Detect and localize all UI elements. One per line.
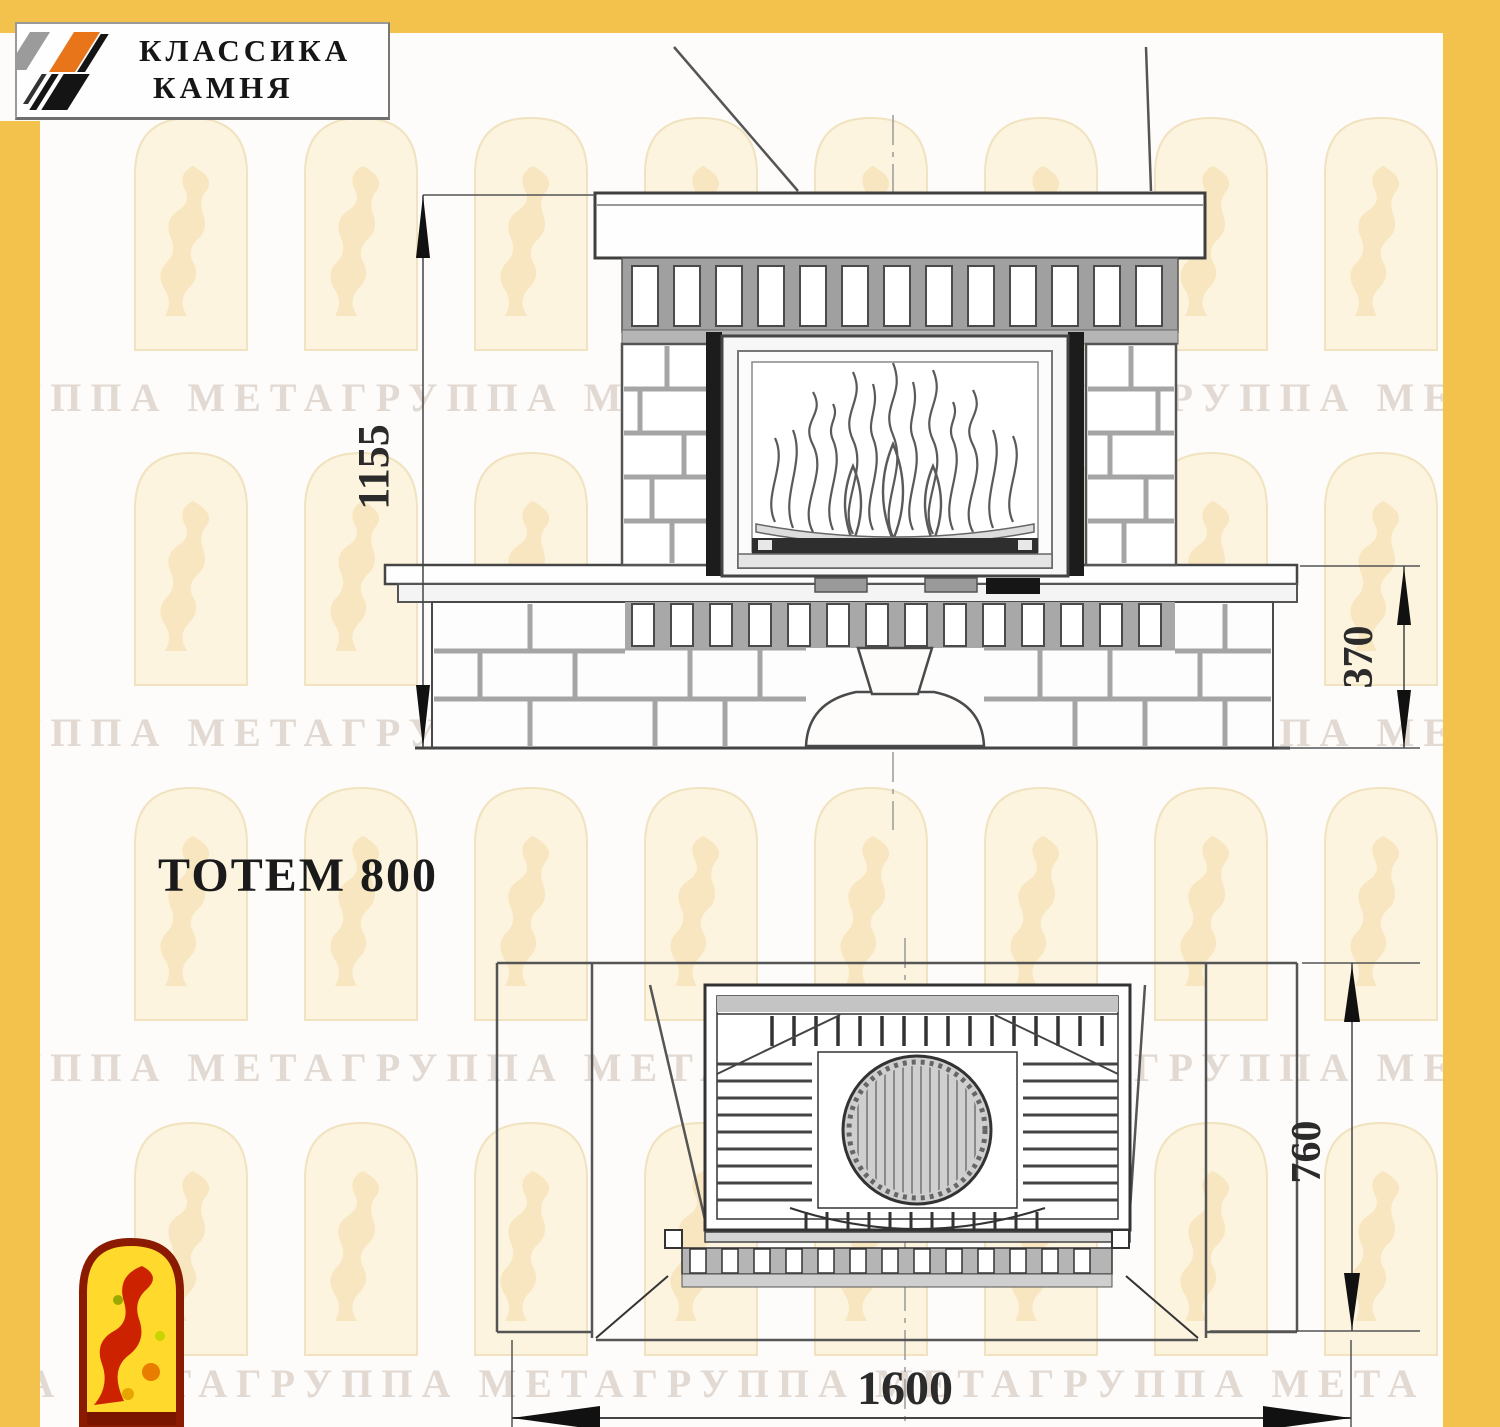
scanned-drawing-page: ГРУППА МЕТАГРУППА МЕТАГРУППА МЕТАГРУППА …: [0, 0, 1500, 1427]
meta-arch-logo: [0, 0, 1500, 1427]
